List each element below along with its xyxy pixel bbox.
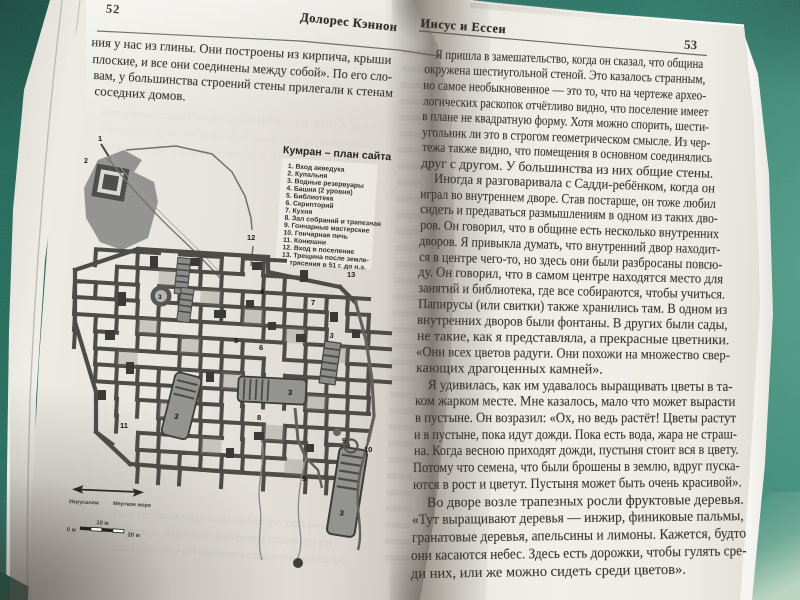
svg-text:11: 11 <box>120 421 128 430</box>
svg-text:10 м: 10 м <box>96 520 109 527</box>
svg-text:12: 12 <box>247 233 255 242</box>
svg-text:6: 6 <box>259 343 263 352</box>
svg-text:2: 2 <box>84 158 88 165</box>
svg-text:3: 3 <box>288 388 293 397</box>
svg-text:5: 5 <box>234 336 238 345</box>
svg-text:1: 1 <box>98 134 102 143</box>
svg-text:20 м: 20 м <box>127 532 140 539</box>
svg-text:Иерусалим: Иерусалим <box>69 499 99 507</box>
svg-text:8: 8 <box>257 413 261 422</box>
svg-text:3: 3 <box>329 333 334 340</box>
svg-text:Мертвое море: Мертвое море <box>113 501 151 509</box>
svg-text:3: 3 <box>158 294 162 301</box>
svg-text:0 м: 0 м <box>67 527 77 534</box>
svg-text:10: 10 <box>364 445 372 454</box>
svg-text:9: 9 <box>302 474 306 483</box>
svg-text:13: 13 <box>347 270 355 279</box>
svg-text:7: 7 <box>311 298 315 307</box>
svg-text:9: 9 <box>342 436 346 445</box>
